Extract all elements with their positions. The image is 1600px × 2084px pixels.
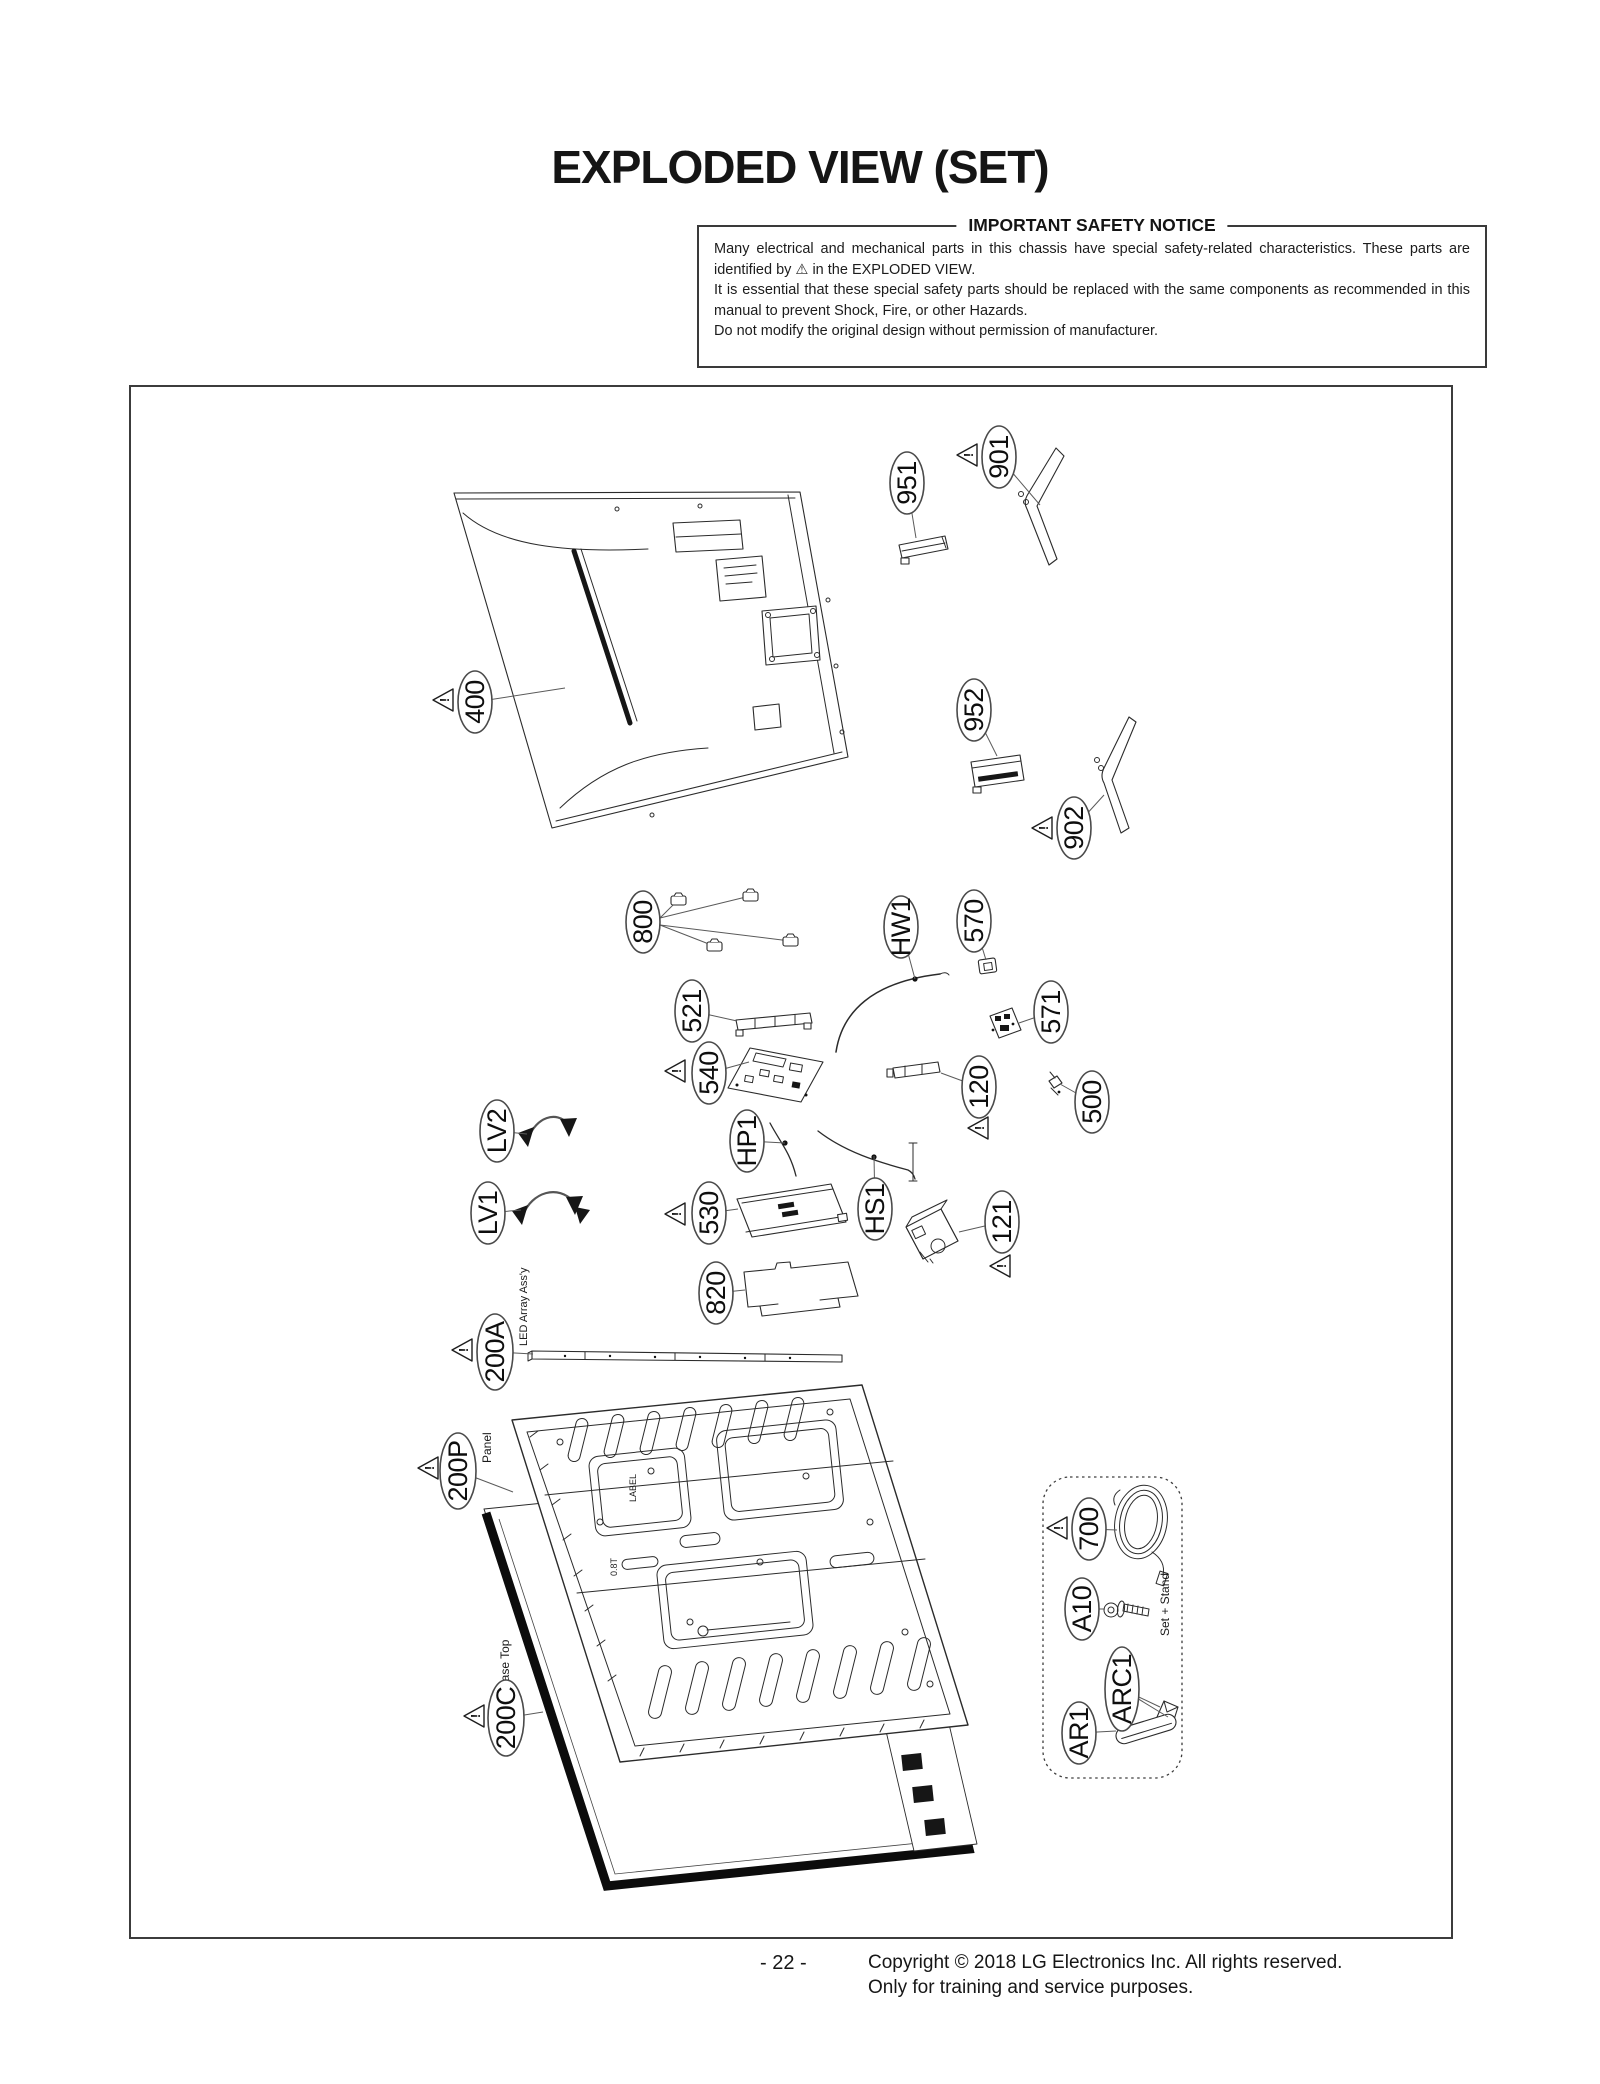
power-cord-700-drawing <box>1109 1481 1173 1586</box>
callout-800: 800 <box>626 891 660 953</box>
svg-text:571: 571 <box>1036 990 1066 1034</box>
svg-text:LV1: LV1 <box>473 1191 503 1236</box>
svg-text:901: 901 <box>984 435 1014 479</box>
svg-text:!: ! <box>961 453 976 457</box>
callout-571: 571 <box>1019 981 1068 1043</box>
led-array-bar-drawing <box>528 1351 842 1362</box>
cable-lv1-drawing <box>512 1192 590 1225</box>
callout-HW1: HW1 <box>884 896 918 979</box>
svg-text:952: 952 <box>959 688 989 732</box>
power-board-530-drawing <box>737 1184 848 1237</box>
svg-text:200C: 200C <box>491 1687 521 1750</box>
svg-text:HS1: HS1 <box>860 1183 890 1234</box>
svg-text:LV2: LV2 <box>482 1109 512 1154</box>
svg-text:820: 820 <box>701 1271 731 1315</box>
panel-thickness-text: 0.8T <box>609 1557 619 1576</box>
svg-text:!: ! <box>1051 1526 1066 1530</box>
main-board-540-drawing <box>728 1048 823 1102</box>
cable-hp1-drawing <box>770 1123 796 1176</box>
callout-A10: A10 <box>1065 1578 1105 1640</box>
part-570-drawing <box>978 958 997 974</box>
callout-200P: 200P <box>440 1433 513 1509</box>
panel-sub-label: Panel <box>480 1432 494 1463</box>
callout-HP1: HP1 <box>730 1110 785 1172</box>
safety-triangle-540: ! <box>665 1060 685 1082</box>
safety-triangle-400: ! <box>433 689 453 711</box>
svg-text:!: ! <box>994 1264 1009 1268</box>
svg-text:!: ! <box>456 1348 471 1352</box>
svg-text:!: ! <box>1036 826 1051 830</box>
cable-hs1-drawing <box>818 1131 917 1181</box>
bracket-820-drawing <box>744 1262 858 1316</box>
svg-text:521: 521 <box>677 989 707 1033</box>
svg-text:200A: 200A <box>480 1321 510 1383</box>
callout-121: 121 <box>959 1191 1019 1253</box>
manual-page: EXPLODED VIEW (SET) IMPORTANT SAFETY NOT… <box>0 0 1600 2084</box>
clips-800-drawing <box>660 889 798 951</box>
svg-text:!: ! <box>669 1212 684 1216</box>
copyright-line-1: Copyright © 2018 LG Electronics Inc. All… <box>868 1950 1342 1975</box>
svg-text:ARC1: ARC1 <box>1107 1654 1137 1724</box>
safety-triangle-902: ! <box>1032 817 1052 839</box>
speaker-121-drawing <box>906 1200 958 1263</box>
part-120-drawing <box>887 1062 940 1078</box>
callout-570: 570 <box>957 890 991 960</box>
copyright-notice: Copyright © 2018 LG Electronics Inc. All… <box>868 1950 1342 2000</box>
callout-700: 700 <box>1072 1498 1117 1560</box>
part-500-drawing <box>1049 1072 1062 1095</box>
svg-text:570: 570 <box>959 899 989 943</box>
callout-951: 951 <box>890 452 924 538</box>
back-cover-drawing <box>454 492 848 828</box>
svg-text:HP1: HP1 <box>732 1115 762 1166</box>
safety-triangle-200C: ! <box>464 1705 484 1727</box>
svg-text:120: 120 <box>964 1065 994 1109</box>
callout-HS1: HS1 <box>858 1156 892 1240</box>
callout-952: 952 <box>957 679 997 756</box>
svg-text:HW1: HW1 <box>886 898 916 957</box>
exploded-view-diagram: LABEL 0.8T <box>0 0 1600 2084</box>
svg-text:540: 540 <box>694 1051 724 1095</box>
svg-text:!: ! <box>437 698 452 702</box>
cable-lv2-drawing <box>518 1117 577 1147</box>
callout-200C: 200C <box>488 1680 543 1756</box>
svg-text:121: 121 <box>987 1200 1017 1244</box>
part-571-drawing <box>990 1008 1021 1038</box>
part-951-drawing <box>899 536 948 564</box>
svg-text:!: ! <box>972 1126 987 1130</box>
safety-triangle-901: ! <box>957 444 977 466</box>
copyright-line-2: Only for training and service purposes. <box>868 1975 1342 2000</box>
screw-a10-drawing <box>1104 1601 1149 1618</box>
svg-text:800: 800 <box>628 900 658 944</box>
panel-label-text: LABEL <box>628 1474 638 1502</box>
safety-triangle-120: ! <box>968 1117 988 1139</box>
safety-triangle-200A: ! <box>452 1339 472 1361</box>
page-number: - 22 - <box>760 1952 807 1975</box>
callout-120: 120 <box>941 1056 996 1118</box>
svg-text:!: ! <box>422 1466 437 1470</box>
led-array-assy-label: LED Array Ass'y <box>518 1267 530 1346</box>
callout-521: 521 <box>675 980 737 1042</box>
set-stand-sub-label: Set + Stand <box>1158 1573 1172 1636</box>
callout-902: 902 <box>1057 795 1104 859</box>
svg-text:A10: A10 <box>1067 1586 1097 1633</box>
svg-text:!: ! <box>669 1069 684 1073</box>
svg-text:AR1: AR1 <box>1064 1707 1094 1758</box>
part-952-drawing <box>971 755 1024 793</box>
svg-text:951: 951 <box>892 461 922 505</box>
svg-text:700: 700 <box>1074 1507 1104 1551</box>
svg-text:400: 400 <box>460 680 490 724</box>
svg-text:200P: 200P <box>443 1440 473 1501</box>
safety-triangle-530: ! <box>665 1203 685 1225</box>
svg-text:530: 530 <box>694 1191 724 1235</box>
callout-820: 820 <box>699 1262 745 1324</box>
svg-text:902: 902 <box>1059 806 1089 850</box>
callout-LV2: LV2 <box>480 1100 527 1162</box>
callout-500: 500 <box>1060 1071 1109 1133</box>
safety-triangle-200P: ! <box>418 1457 438 1479</box>
stand-leg-901-drawing <box>1019 448 1065 565</box>
svg-text:500: 500 <box>1077 1080 1107 1124</box>
stand-leg-902-drawing <box>1095 717 1137 833</box>
svg-text:!: ! <box>468 1714 483 1718</box>
safety-triangle-700: ! <box>1047 1517 1067 1539</box>
cable-hw1-drawing <box>836 973 949 1052</box>
safety-triangle-121: ! <box>990 1255 1010 1277</box>
part-521-drawing <box>736 1013 812 1036</box>
callout-530: 530 <box>692 1182 738 1244</box>
